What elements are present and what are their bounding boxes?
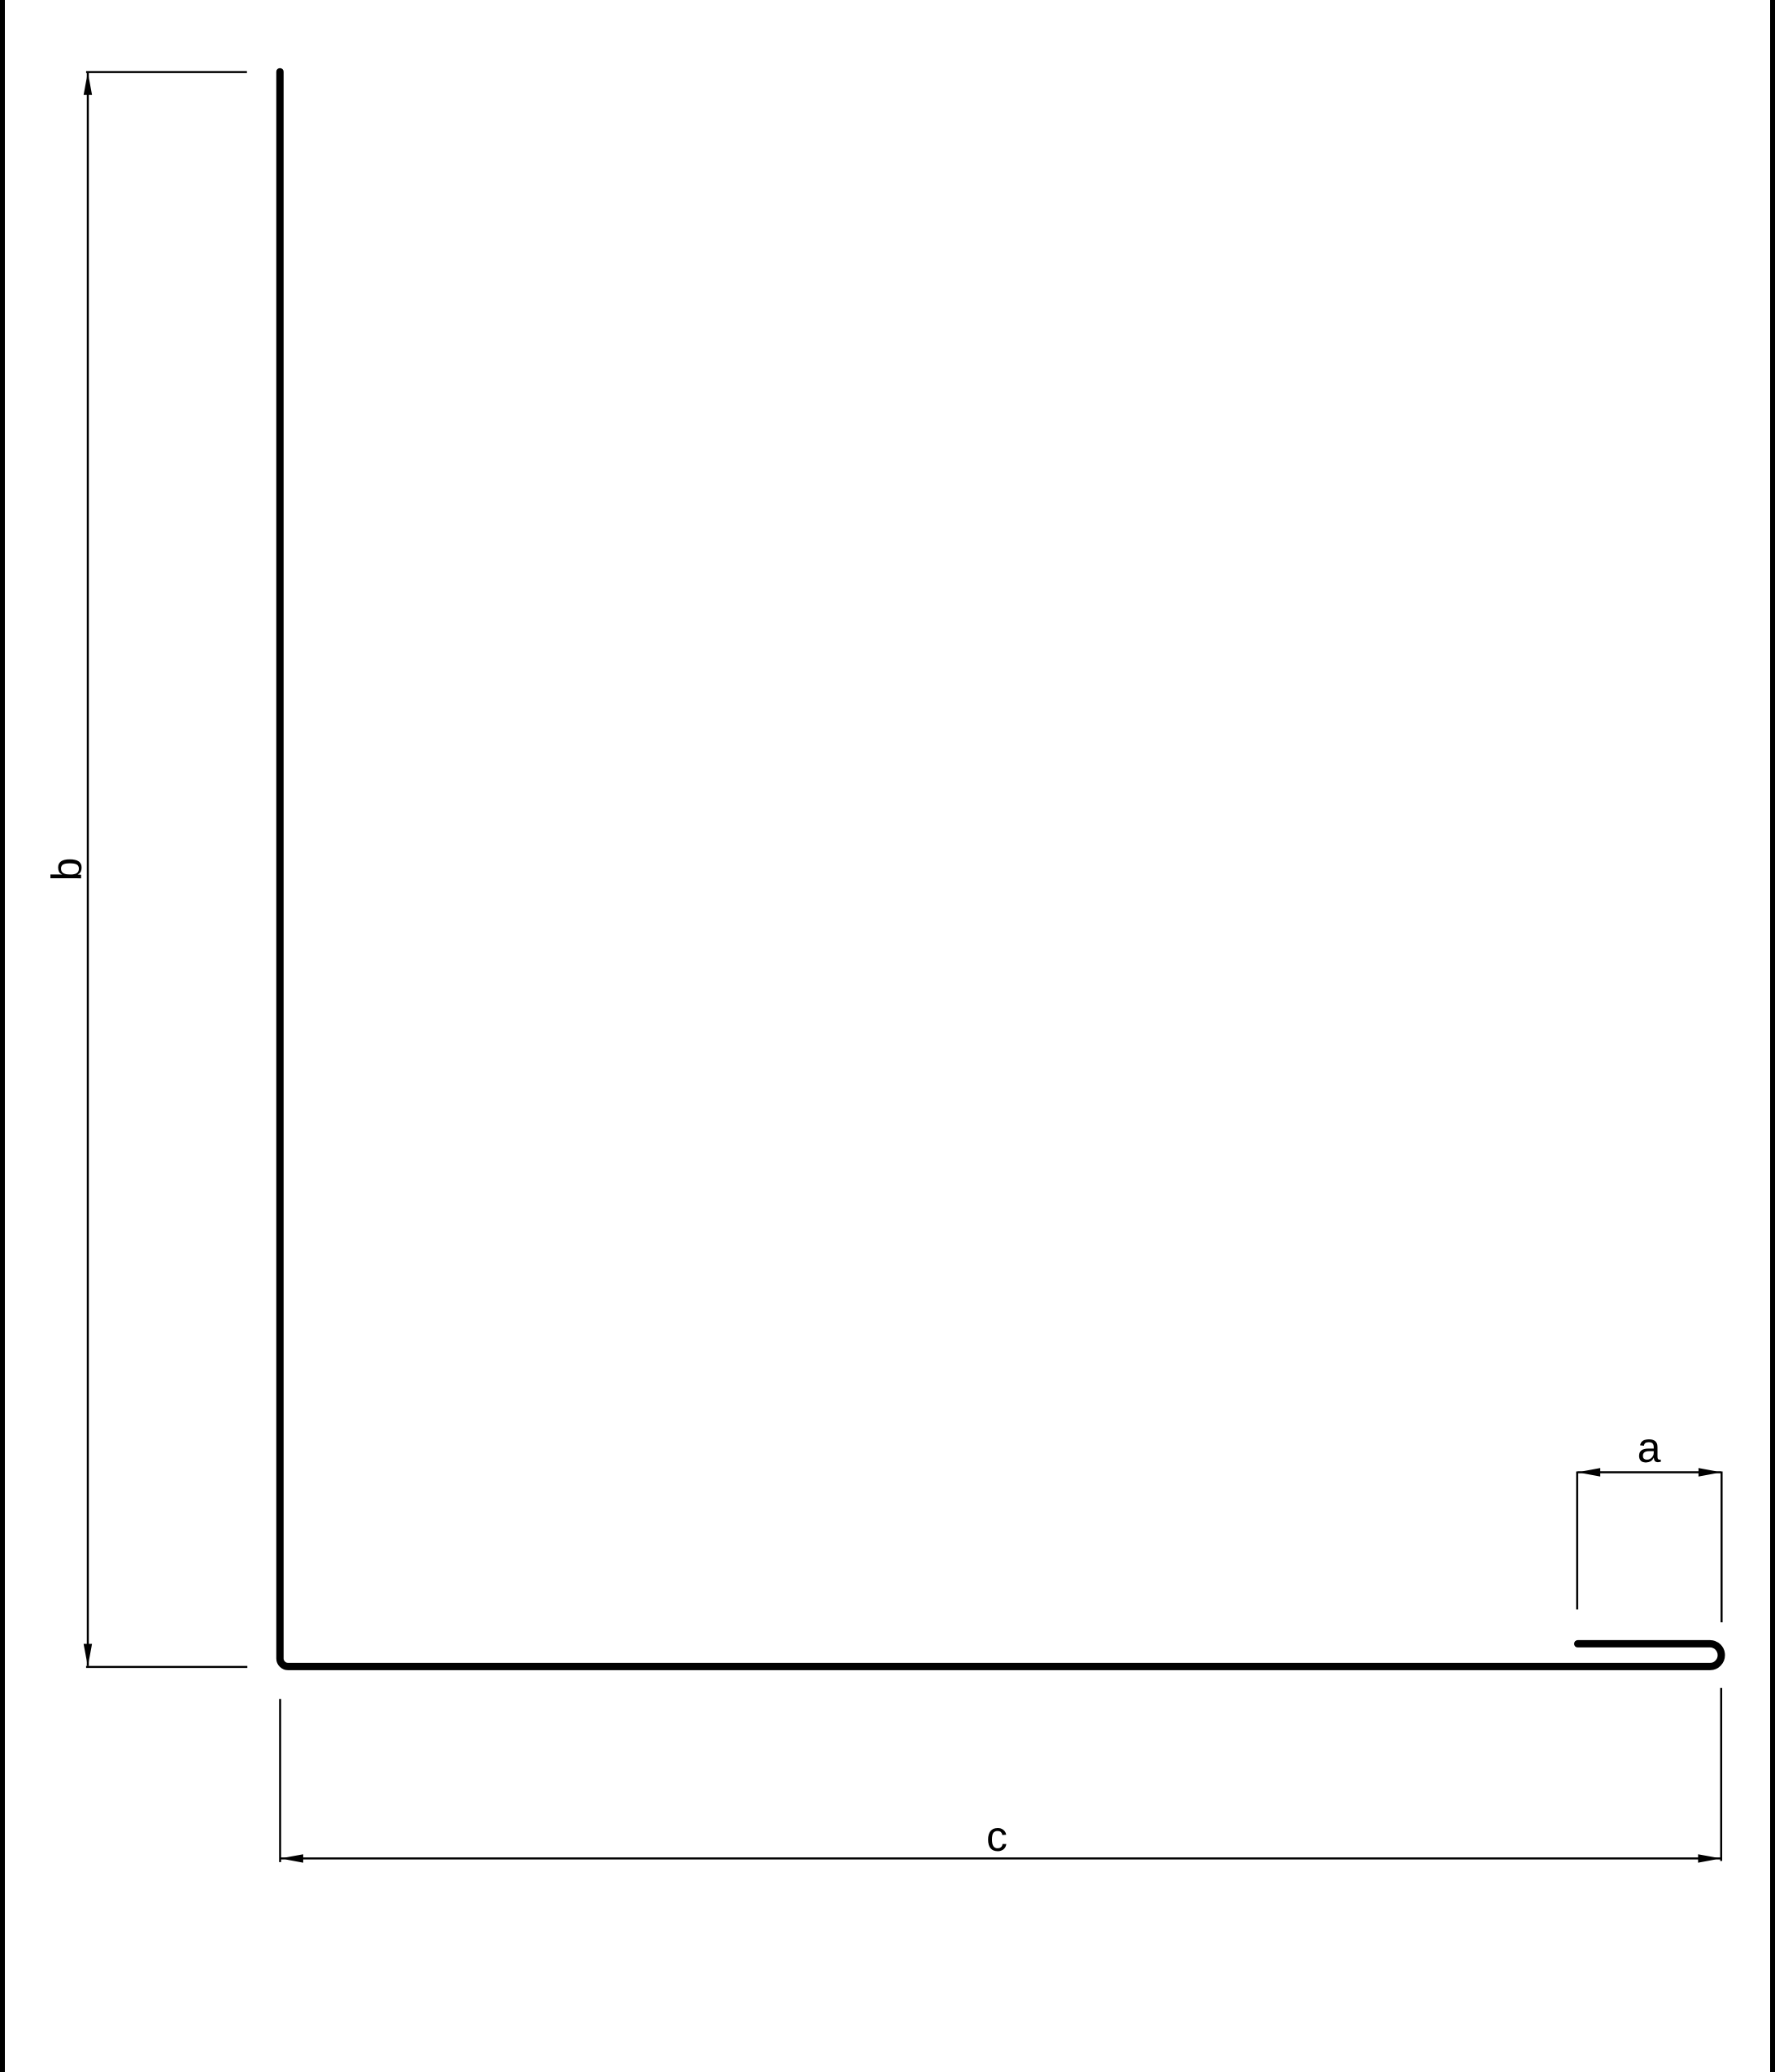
svg-text:a: a xyxy=(1638,1425,1661,1472)
svg-text:c: c xyxy=(986,1813,1007,1861)
svg-text:b: b xyxy=(44,858,91,881)
